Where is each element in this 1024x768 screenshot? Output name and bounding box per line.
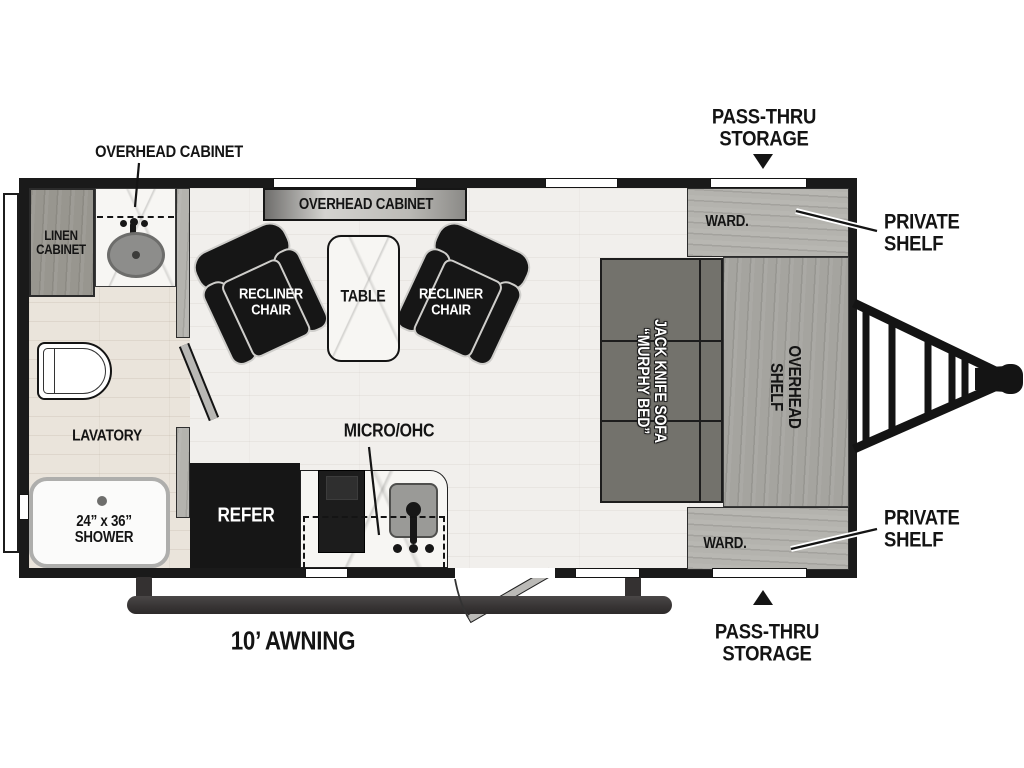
awning-label: 10’ AWNING bbox=[231, 627, 356, 654]
shower-label: 24” x 36” SHOWER bbox=[75, 514, 133, 546]
recliner-right-label: RECLINER CHAIR bbox=[419, 286, 483, 317]
window bbox=[575, 568, 640, 578]
label-line: SHELF bbox=[884, 233, 960, 255]
label-line: 24” x 36” bbox=[75, 514, 133, 530]
hitch-crossbars-icon bbox=[866, 306, 965, 446]
faucet-knob-icon bbox=[120, 220, 127, 227]
micro-ohc-label: MICRO/OHC bbox=[344, 420, 434, 439]
shower-drain-icon bbox=[97, 496, 107, 506]
wardrobe-top-label: WARD. bbox=[705, 214, 748, 230]
table-label: TABLE bbox=[341, 288, 386, 305]
label-line: PRIVATE bbox=[884, 507, 960, 529]
faucet-knob-icon bbox=[141, 220, 148, 227]
label-line: PRIVATE bbox=[884, 211, 960, 233]
label-line: JACK KNIFE SOFA bbox=[651, 319, 668, 443]
hitch-frame-icon bbox=[854, 303, 1006, 449]
private-shelf-bottom-label: PRIVATE SHELF bbox=[884, 507, 960, 552]
label-line: PASS-THRU bbox=[715, 621, 819, 643]
sofa-seat-seam bbox=[699, 260, 701, 501]
window bbox=[19, 494, 29, 520]
private-shelf-top-label: PRIVATE SHELF bbox=[884, 211, 960, 256]
bathroom-wall-lower bbox=[176, 427, 190, 518]
toilet-bowl bbox=[43, 348, 106, 394]
linen-cabinet-label: LINEN CABINET bbox=[36, 229, 86, 257]
awning-mount bbox=[625, 577, 641, 598]
cooktop-burner bbox=[326, 476, 358, 500]
microwave-overhead-cabinet-outline bbox=[303, 516, 445, 568]
pass-thru-arrow-down-icon bbox=[753, 154, 773, 169]
awning-mount bbox=[136, 577, 152, 598]
pass-thru-storage-top-label: PASS-THRU STORAGE bbox=[712, 106, 816, 151]
label-line: CHAIR bbox=[239, 302, 303, 318]
window bbox=[273, 178, 417, 188]
dinette-overhead-cabinet-label: OVERHEAD CABINET bbox=[299, 197, 433, 213]
refrigerator-label: REFER bbox=[217, 506, 274, 527]
label-line: CHAIR bbox=[419, 302, 483, 318]
hitch-nose-icon bbox=[975, 366, 1006, 392]
label-line: SHELF bbox=[768, 345, 786, 428]
jack-knife-sofa-label: JACK KNIFE SOFA “MURPHY BED” bbox=[634, 319, 668, 443]
overhead-shelf-label: OVERHEAD SHELF bbox=[768, 345, 804, 428]
label-line: SHELF bbox=[884, 529, 960, 551]
wardrobe-bottom-label: WARD. bbox=[703, 536, 746, 552]
window bbox=[545, 178, 618, 188]
entry-door-opening bbox=[455, 568, 555, 578]
label-line: CABINET bbox=[36, 243, 86, 257]
label-line: RECLINER bbox=[239, 286, 303, 302]
label-line: SHOWER bbox=[75, 530, 133, 546]
overhead-cabinet-callout-label: OVERHEAD CABINET bbox=[95, 143, 243, 161]
label-line: RECLINER bbox=[419, 286, 483, 302]
sink-drain-icon bbox=[132, 251, 140, 259]
pass-thru-storage-door-top bbox=[710, 178, 807, 188]
toilet bbox=[37, 342, 112, 400]
rear-bumper-panel bbox=[3, 193, 19, 553]
label-line: OVERHEAD bbox=[786, 345, 804, 428]
label-line: LINEN bbox=[36, 229, 86, 243]
pass-thru-storage-door-bottom bbox=[712, 568, 807, 578]
lavatory-label: LAVATORY bbox=[72, 429, 142, 446]
window bbox=[305, 568, 348, 578]
pass-thru-arrow-up-icon bbox=[753, 590, 773, 605]
label-line: “MURPHY BED” bbox=[634, 319, 651, 443]
floorplan-canvas: OVERHEAD CABINET PASS-THRU STORAGE PRIVA… bbox=[0, 0, 1024, 768]
awning-bar bbox=[127, 596, 672, 614]
recliner-left-label: RECLINER CHAIR bbox=[239, 286, 303, 317]
label-line: STORAGE bbox=[712, 128, 816, 150]
label-line: PASS-THRU bbox=[712, 106, 816, 128]
label-line: STORAGE bbox=[715, 643, 819, 665]
pass-thru-storage-bottom-label: PASS-THRU STORAGE bbox=[715, 621, 819, 666]
toilet-seam bbox=[54, 348, 55, 394]
hitch-coupler-icon bbox=[998, 364, 1023, 394]
